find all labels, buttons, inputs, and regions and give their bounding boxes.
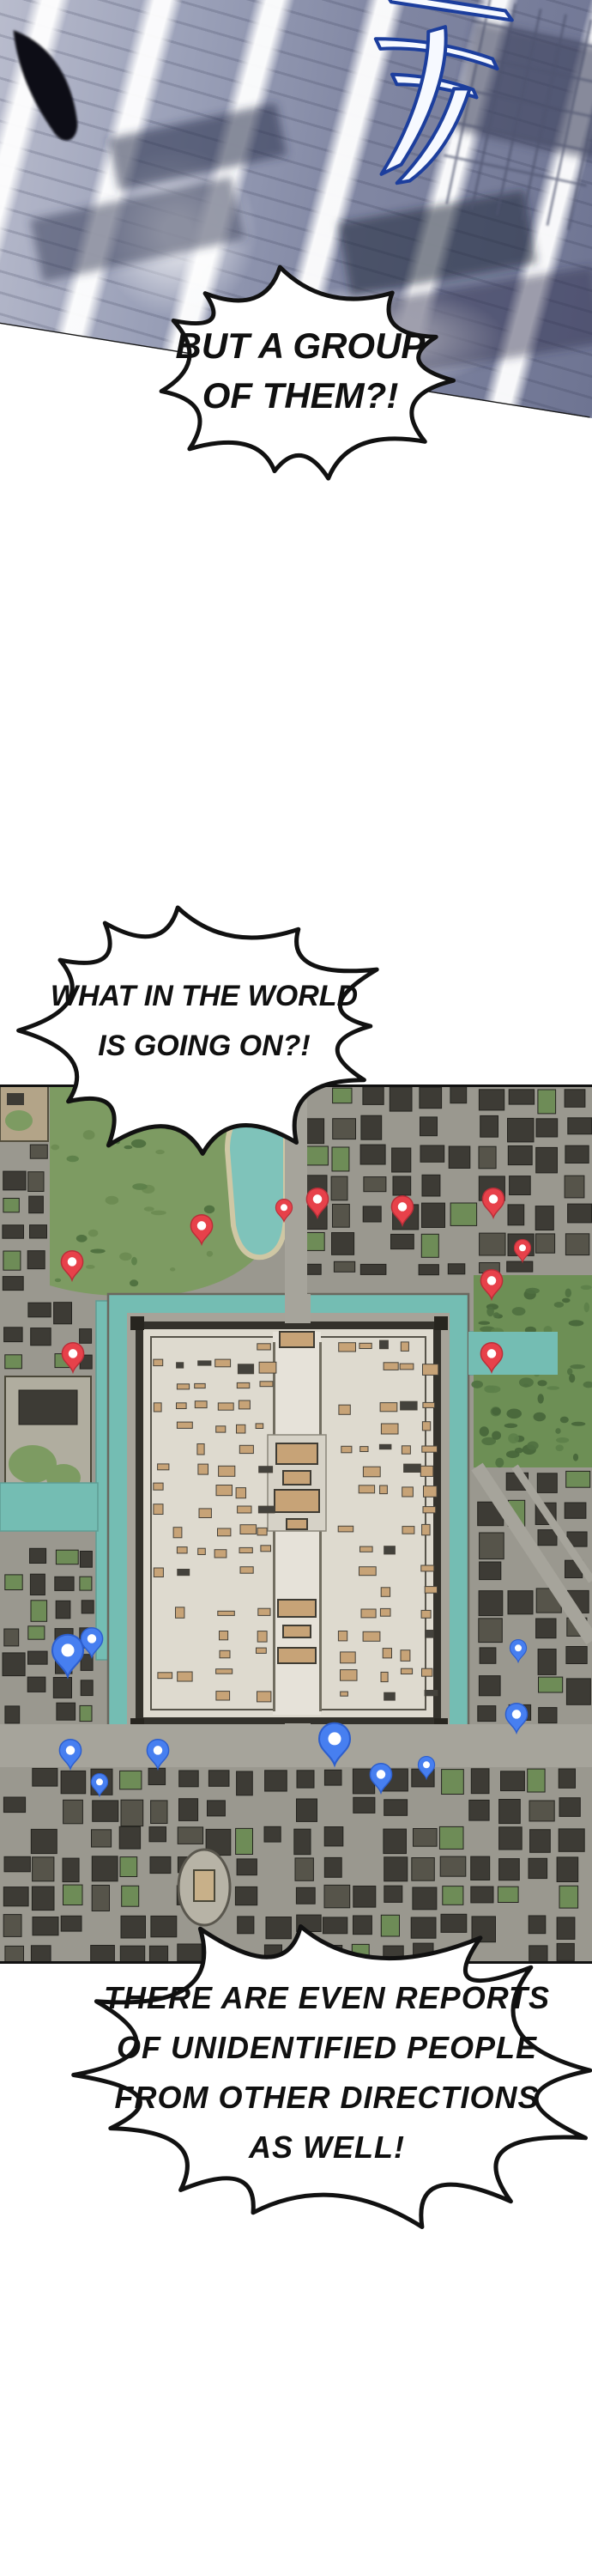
bubble-line: OF UNIDENTIFIED PEOPLE xyxy=(62,2023,592,2073)
bubble-line: BUT A GROUP xyxy=(129,321,472,371)
forbidden-city-map xyxy=(0,1084,592,1964)
webtoon-page: BUT A GROUP OF THEM?! WHAT IN THE WORLD … xyxy=(0,0,592,2576)
palace-complex xyxy=(108,1294,468,1759)
speech-bubble-3: THERE ARE EVEN REPORTS OF UNIDENTIFIED P… xyxy=(62,1908,592,2258)
city-map-panel xyxy=(0,1084,592,1964)
dark-silhouette xyxy=(11,21,82,148)
speech-bubble-2: WHAT IN THE WORLD IS GOING ON?! xyxy=(7,886,402,1178)
bubble-line: THERE ARE EVEN REPORTS xyxy=(62,1973,592,2023)
speech-bubble-1: BUT A GROUP OF THEM?! xyxy=(129,251,472,500)
bubble-line: IS GOING ON?! xyxy=(7,1021,402,1071)
bubble-line: WHAT IN THE WORLD xyxy=(7,971,402,1021)
bubble-line: FROM OTHER DIRECTIONS xyxy=(62,2073,592,2123)
bubble-line: AS WELL! xyxy=(62,2123,592,2172)
bubble-line: OF THEM?! xyxy=(129,371,472,421)
